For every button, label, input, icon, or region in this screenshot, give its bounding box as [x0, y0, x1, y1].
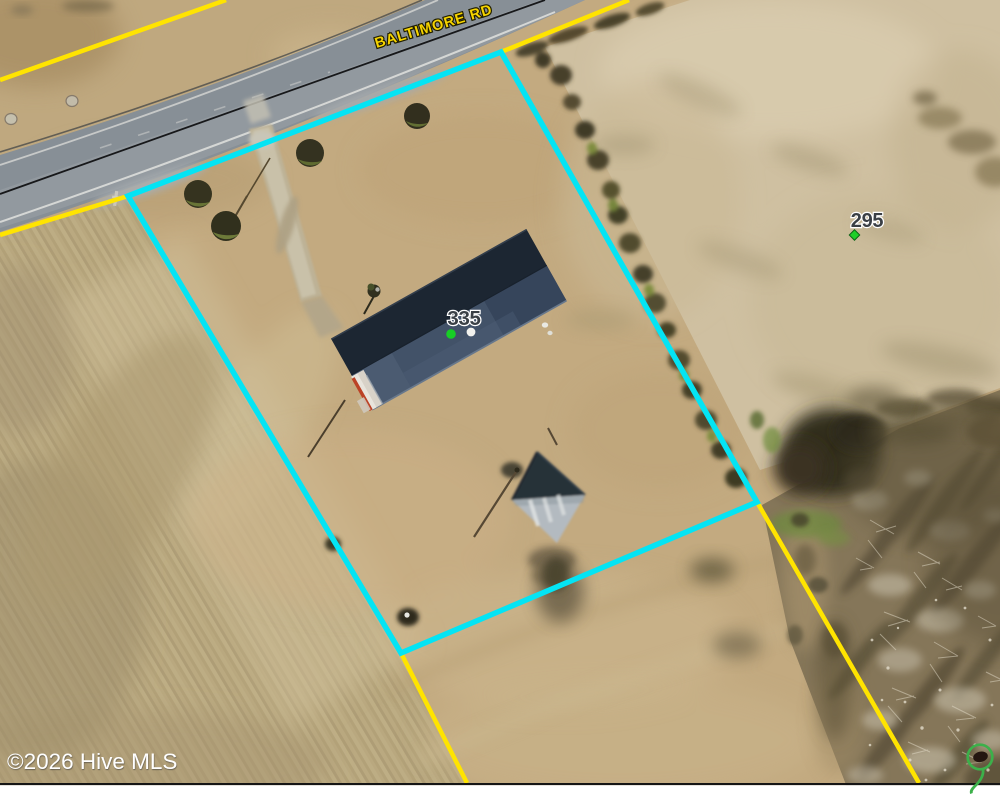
svg-text:295: 295 — [851, 210, 884, 232]
svg-text:335: 335 — [447, 307, 480, 330]
svg-text:©2026 Hive MLS: ©2026 Hive MLS — [7, 749, 177, 774]
